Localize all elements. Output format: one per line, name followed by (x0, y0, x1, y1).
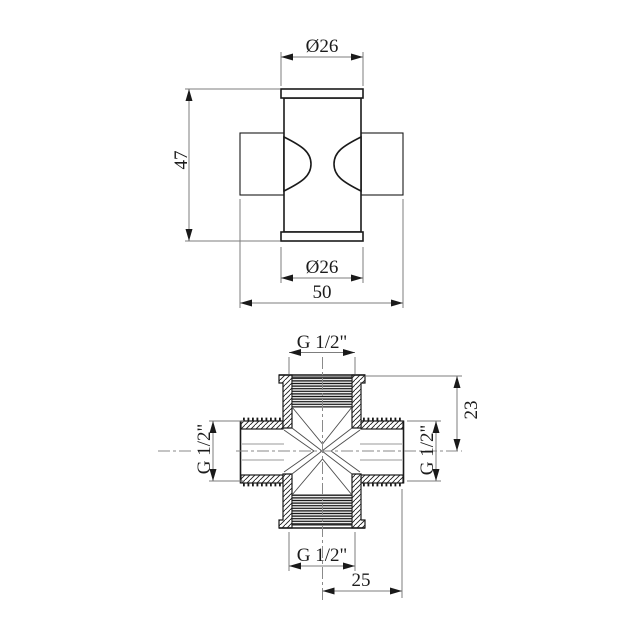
front-view-geometry (240, 89, 403, 241)
dim-label-overall-width: 50 (313, 282, 332, 303)
dim-label-23: 23 (461, 401, 482, 420)
right-port-bottom-thread-band (361, 475, 403, 483)
male-thread-left (240, 133, 284, 195)
male-thread-right (361, 133, 403, 195)
section-view: G 1/2" G 1/2" G 1/2" 23 G 1/2" 25 (158, 332, 482, 600)
dim-label-height: 47 (171, 151, 192, 170)
section-view-dimensions: G 1/2" G 1/2" G 1/2" 23 G 1/2" 25 (194, 332, 482, 598)
technical-drawing: Ø26 47 Ø26 50 (0, 0, 630, 630)
dim-label-25: 25 (352, 570, 371, 591)
top-port-wall-left (279, 375, 292, 428)
dim-label-left-thread: G 1/2" (194, 424, 215, 475)
left-port-top-thread-band (241, 421, 283, 429)
dim-label-top-thread: G 1/2" (297, 332, 348, 353)
dim-label-bottom-thread: G 1/2" (297, 545, 348, 566)
dim-label-right-thread: G 1/2" (417, 425, 438, 476)
left-port-bottom-thread-band (241, 475, 283, 483)
bottom-flange (281, 232, 363, 241)
right-port-top-thread-band (361, 421, 403, 429)
top-flange (281, 89, 363, 98)
drawing-canvas: Ø26 47 Ø26 50 (0, 0, 630, 630)
front-view: Ø26 47 Ø26 50 (171, 36, 403, 308)
dim-label-top-diameter: Ø26 (306, 36, 339, 57)
dim-label-bottom-diameter: Ø26 (306, 257, 339, 278)
